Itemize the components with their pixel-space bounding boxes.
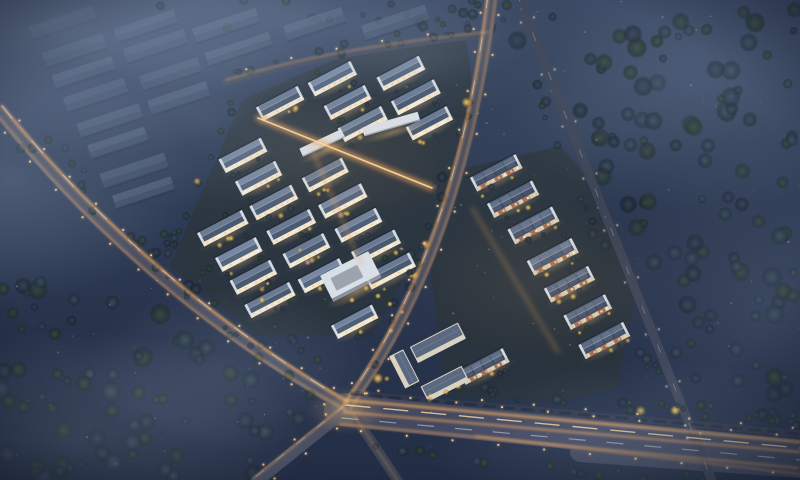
vignette bbox=[0, 0, 800, 480]
aerial-night-rendering bbox=[0, 0, 800, 480]
rendering-viewport bbox=[0, 0, 800, 480]
vignette-overlay bbox=[0, 0, 800, 480]
